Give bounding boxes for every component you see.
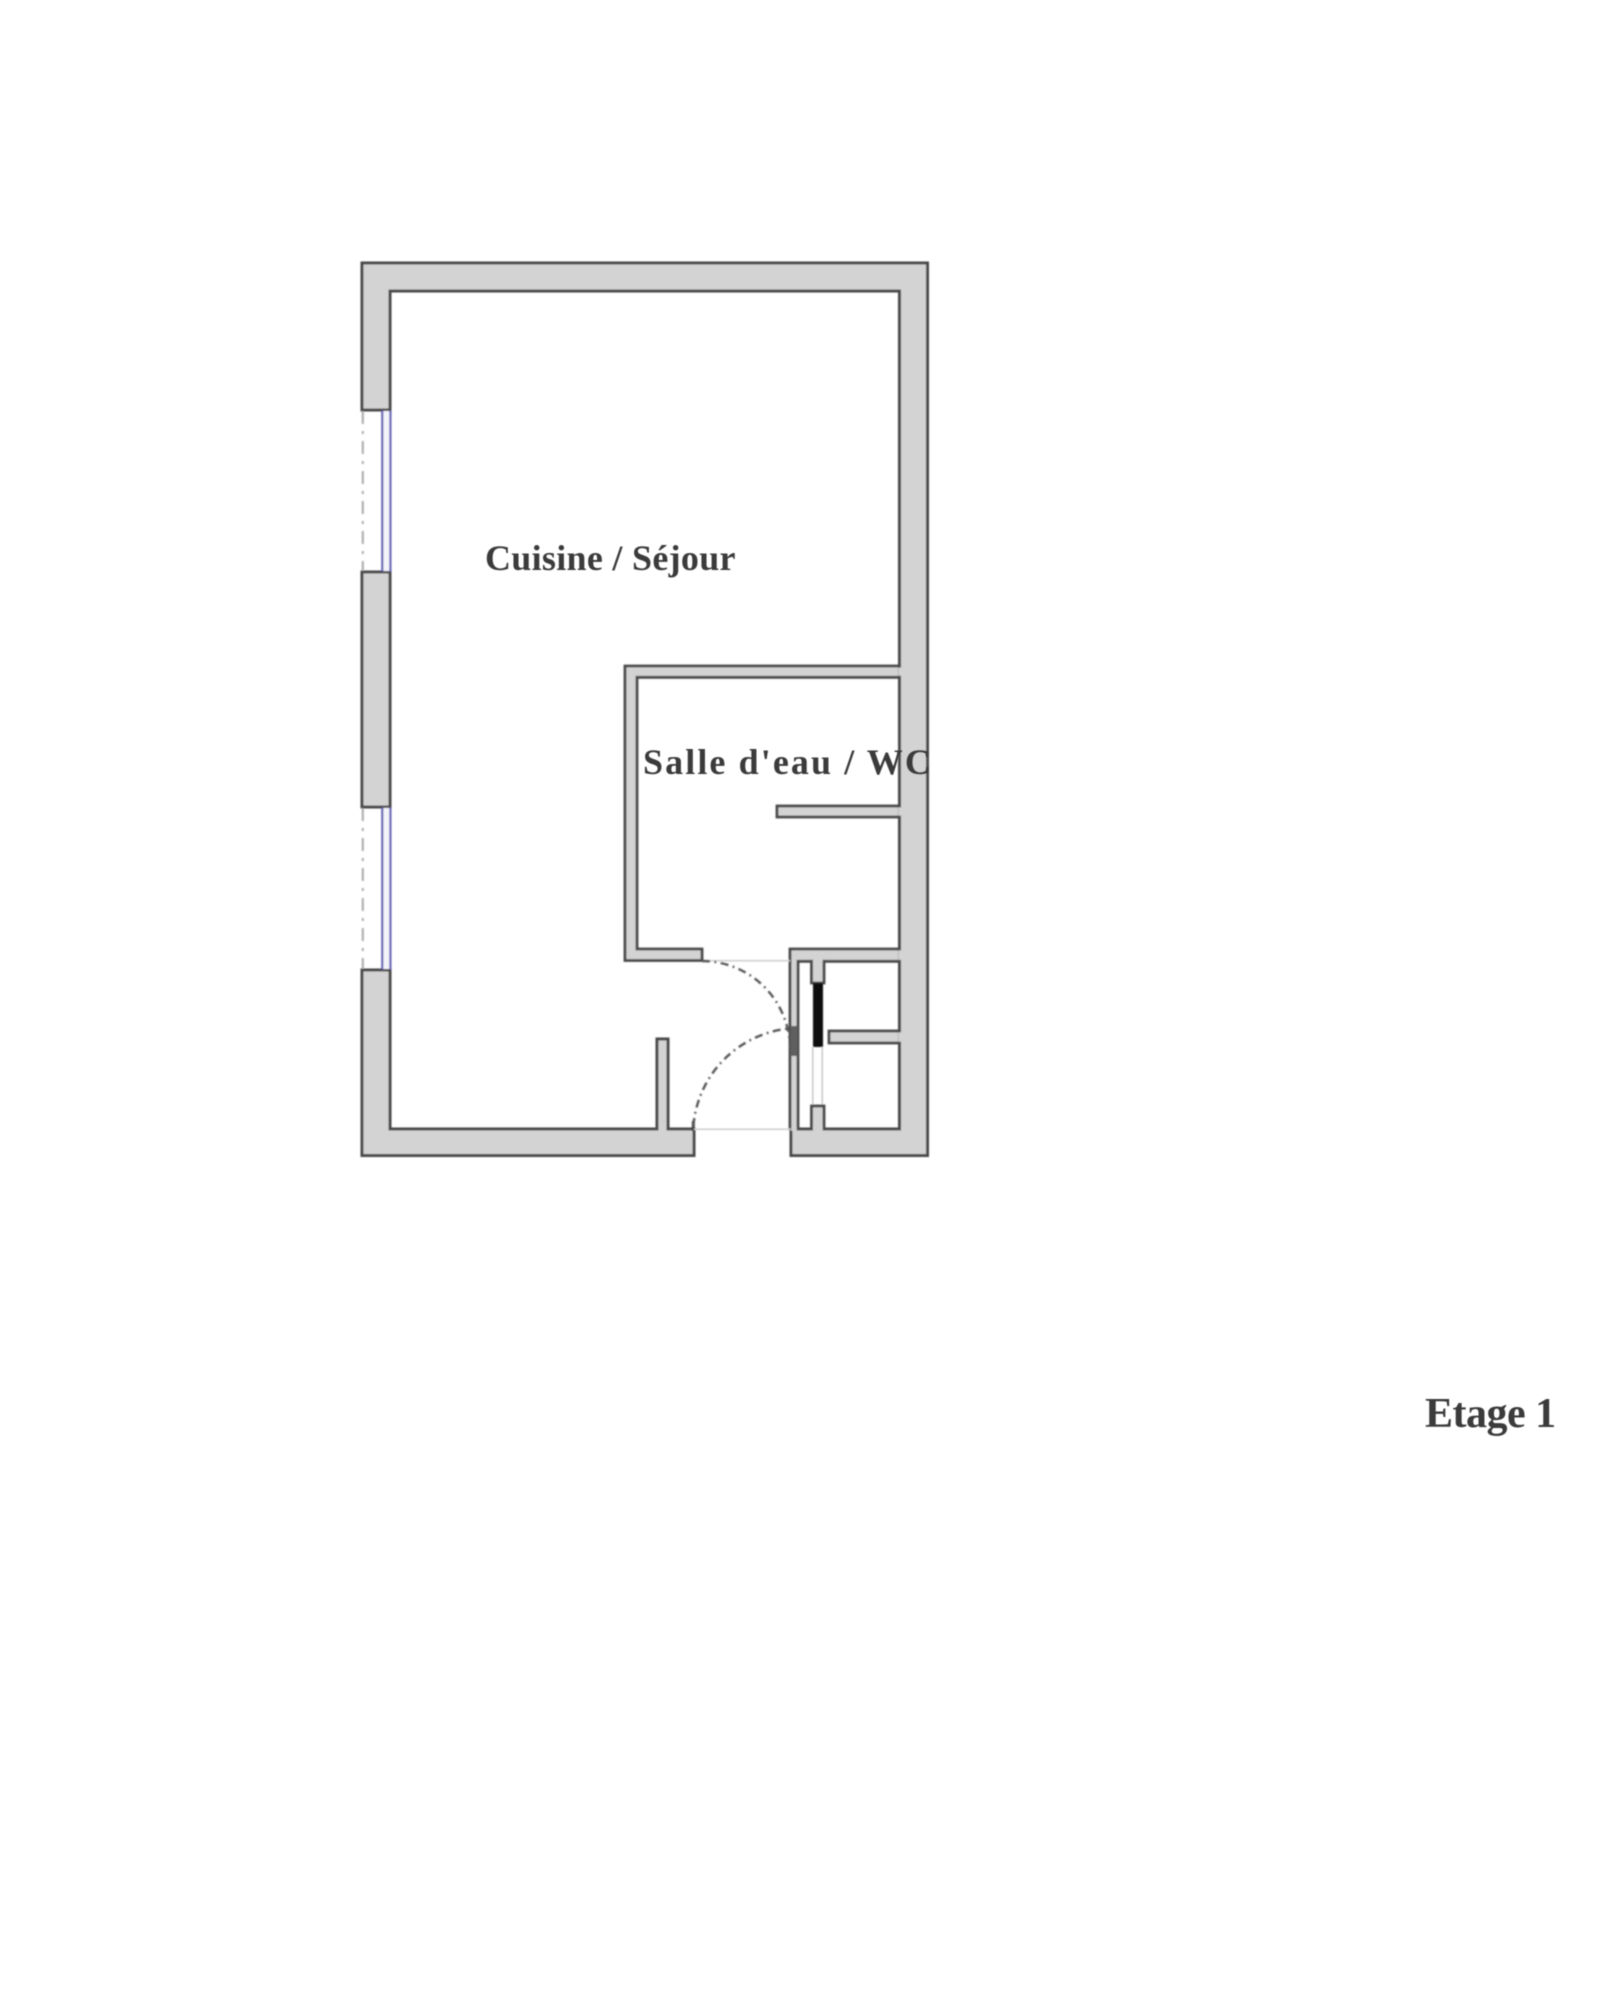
svg-text:Cuisine / Séjour: Cuisine / Séjour	[485, 538, 736, 578]
svg-text:Salle d'eau / WC: Salle d'eau / WC	[643, 742, 933, 782]
svg-text:Etage 1: Etage 1	[1425, 1391, 1556, 1437]
